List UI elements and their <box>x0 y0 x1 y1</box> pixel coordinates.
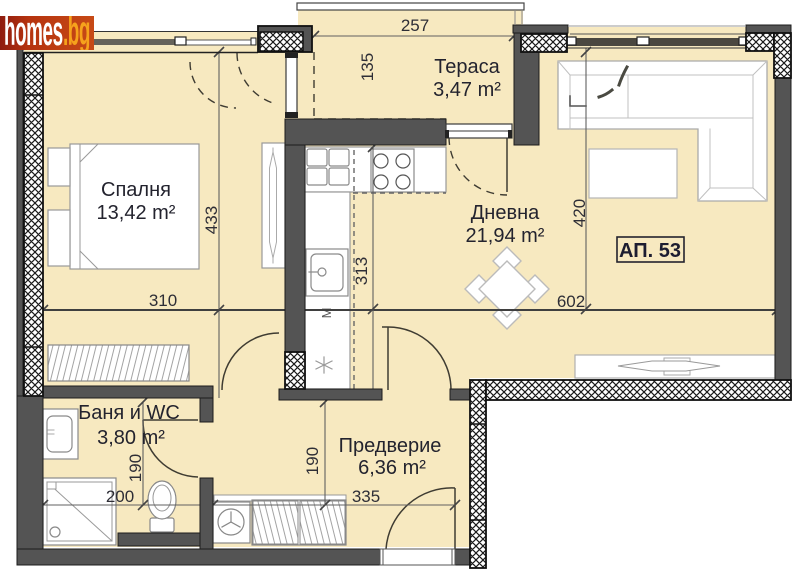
svg-text:310: 310 <box>149 291 177 310</box>
svg-text:602: 602 <box>557 292 585 311</box>
svg-text:135: 135 <box>358 53 377 81</box>
svg-text:3,47 m²: 3,47 m² <box>433 79 501 101</box>
svg-text:313: 313 <box>352 257 371 285</box>
svg-text:3,80 m²: 3,80 m² <box>97 427 165 449</box>
svg-text:Спалня: Спалня <box>101 179 171 201</box>
svg-text:21,94 m²: 21,94 m² <box>466 225 545 247</box>
svg-text:6,36 m²: 6,36 m² <box>358 457 426 479</box>
svg-text:257: 257 <box>401 16 429 35</box>
svg-text:200: 200 <box>106 487 134 506</box>
svg-text:190: 190 <box>126 454 145 482</box>
svg-text:АП. 53: АП. 53 <box>619 240 681 262</box>
svg-text:190: 190 <box>303 447 322 475</box>
svg-text:433: 433 <box>202 206 221 234</box>
svg-text:Баня и WC: Баня и WC <box>78 402 180 424</box>
svg-text:Предверие: Предверие <box>339 435 442 457</box>
svg-text:420: 420 <box>570 199 589 227</box>
svg-text:335: 335 <box>352 487 380 506</box>
svg-text:13,42 m²: 13,42 m² <box>97 202 176 224</box>
svg-text:Дневна: Дневна <box>471 202 540 224</box>
svg-text:Тераса: Тераса <box>434 56 500 78</box>
